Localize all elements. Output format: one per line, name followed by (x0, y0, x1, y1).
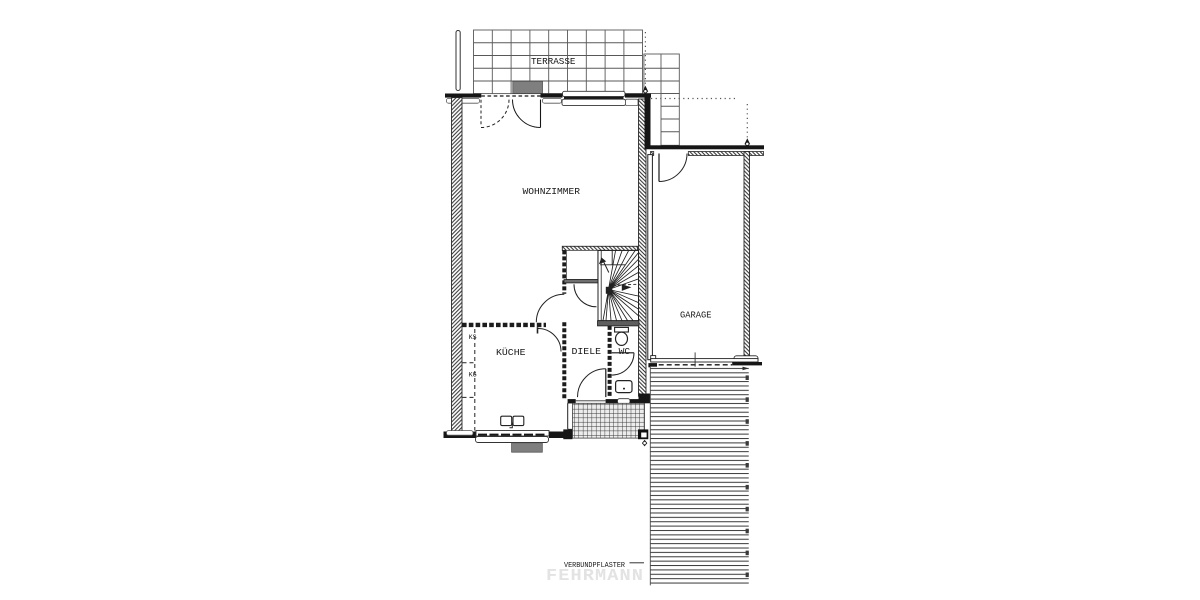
svg-text:WC: WC (619, 346, 631, 357)
svg-text:WOHNZIMMER: WOHNZIMMER (523, 186, 581, 197)
svg-text:TERRASSE: TERRASSE (531, 56, 576, 67)
svg-text:KS: KS (469, 334, 477, 341)
svg-text:KÜCHE: KÜCHE (496, 347, 526, 358)
svg-text:KG: KG (469, 371, 477, 378)
svg-text:DIELE: DIELE (572, 346, 602, 357)
svg-text:GARAGE: GARAGE (680, 309, 712, 320)
svg-text:VERBUNDPFLASTER: VERBUNDPFLASTER (564, 562, 625, 570)
